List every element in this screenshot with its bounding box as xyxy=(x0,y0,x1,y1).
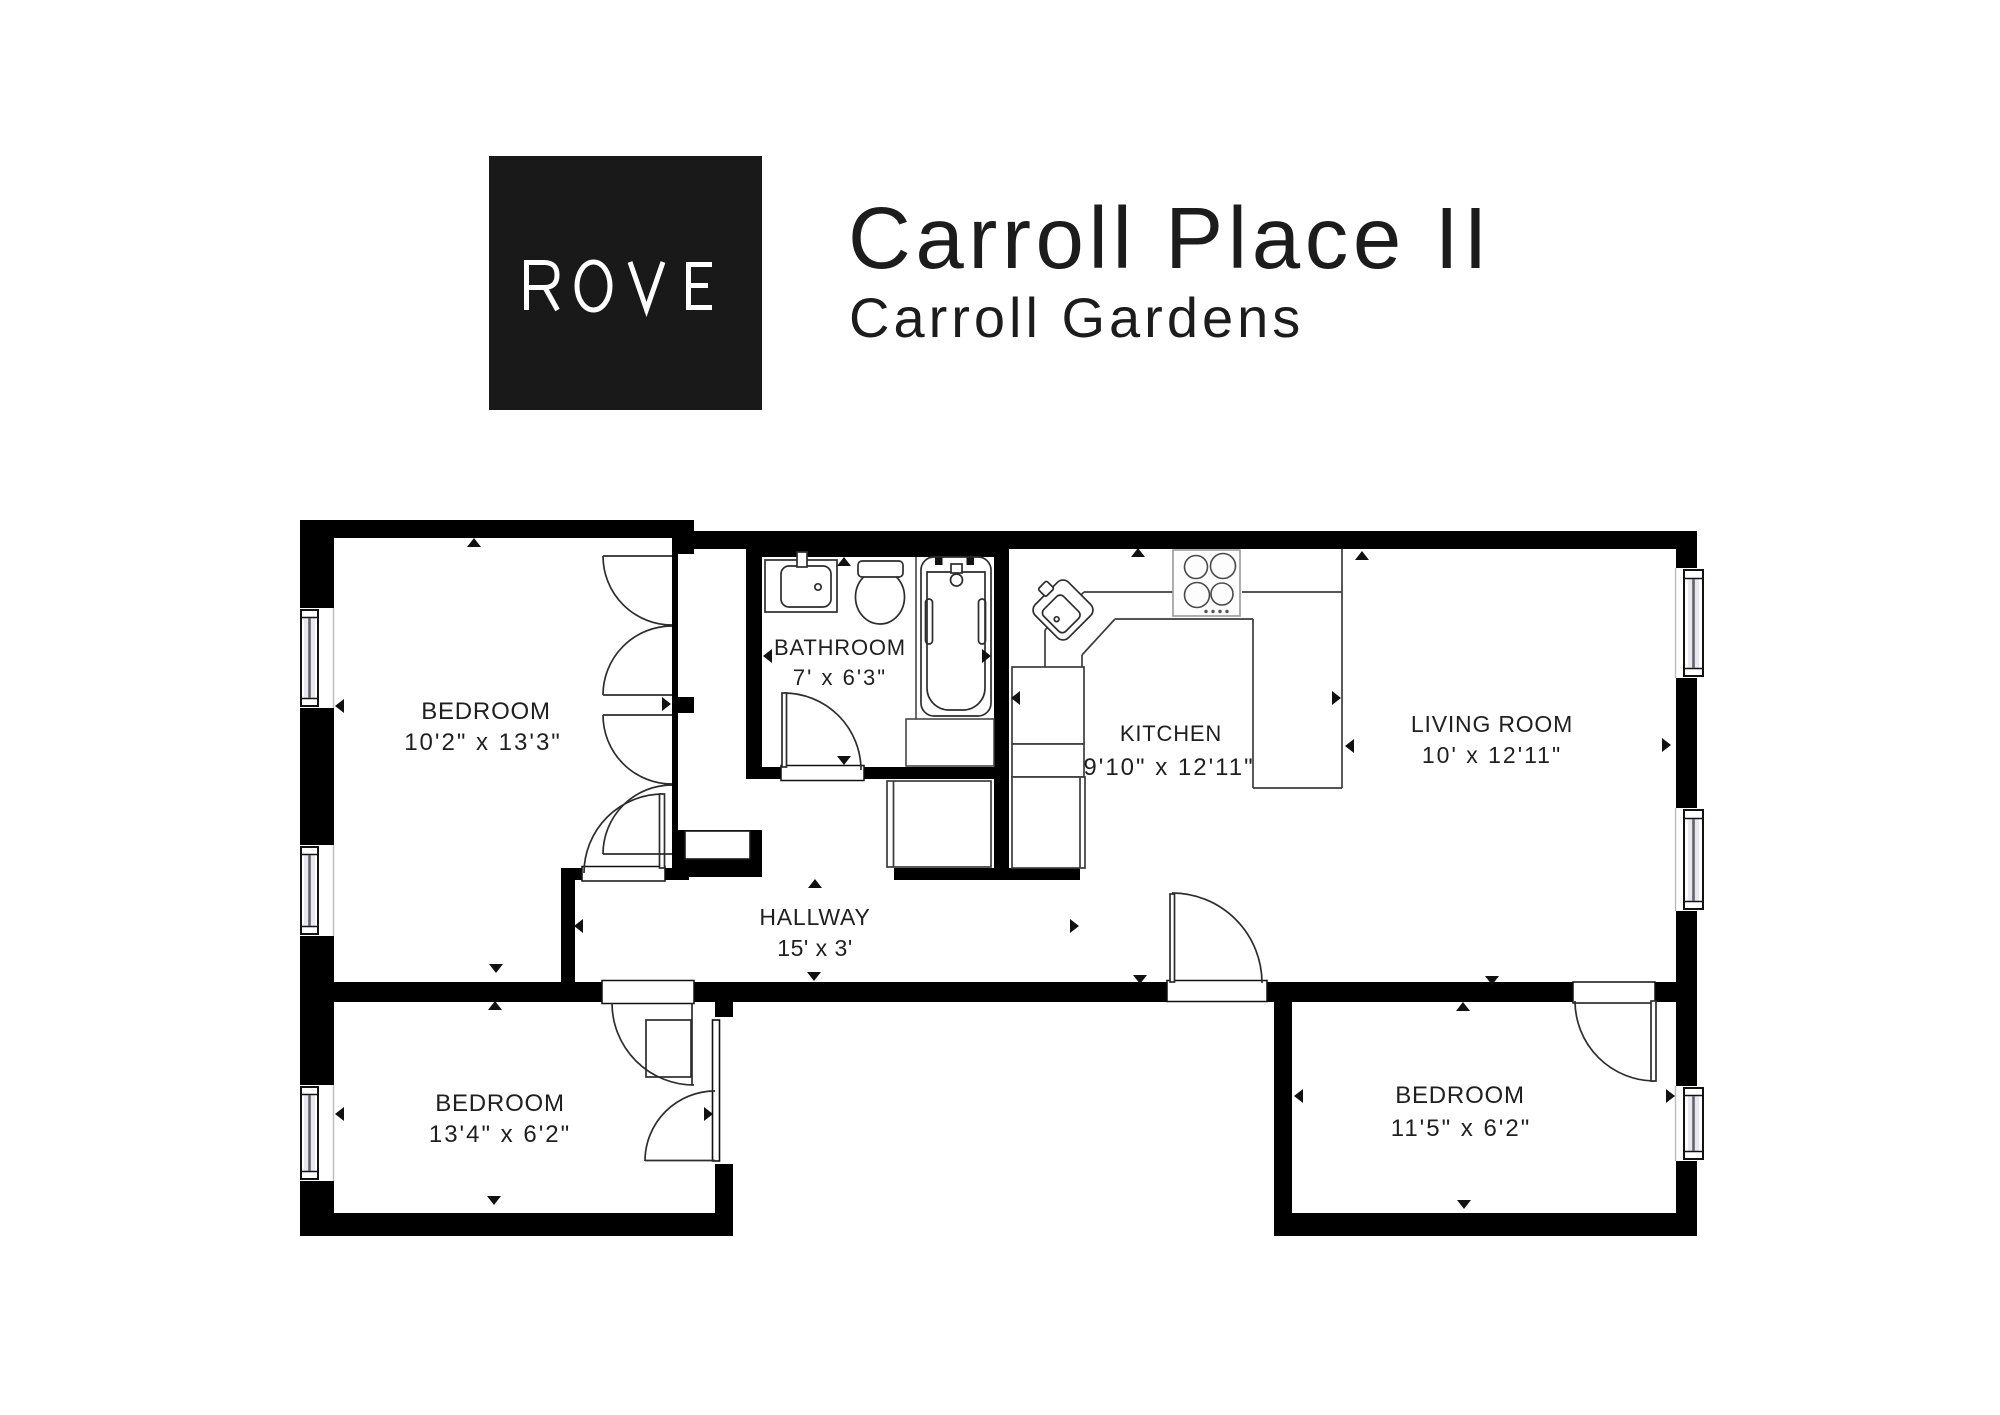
svg-text:10' x 12'11": 10' x 12'11" xyxy=(1422,742,1562,768)
svg-text:BEDROOM: BEDROOM xyxy=(1395,1082,1525,1109)
svg-text:9'10" x 12'11": 9'10" x 12'11" xyxy=(1083,754,1254,781)
svg-text:13'4" x 6'2": 13'4" x 6'2" xyxy=(429,1121,571,1148)
svg-text:Carroll Gardens: Carroll Gardens xyxy=(849,286,1304,349)
svg-text:HALLWAY: HALLWAY xyxy=(759,904,870,930)
svg-text:Carroll Place II: Carroll Place II xyxy=(848,190,1492,287)
svg-text:11'5" x 6'2": 11'5" x 6'2" xyxy=(1391,1115,1532,1142)
svg-text:15' x 3': 15' x 3' xyxy=(777,935,852,961)
svg-text:KITCHEN: KITCHEN xyxy=(1120,721,1222,746)
svg-text:BEDROOM: BEDROOM xyxy=(435,1090,565,1117)
svg-text:10'2" x 13'3": 10'2" x 13'3" xyxy=(404,729,562,756)
svg-text:BEDROOM: BEDROOM xyxy=(421,698,551,725)
svg-text:BATHROOM: BATHROOM xyxy=(774,635,906,660)
svg-text:7' x 6'3": 7' x 6'3" xyxy=(793,665,887,690)
svg-text:LIVING ROOM: LIVING ROOM xyxy=(1411,711,1573,737)
